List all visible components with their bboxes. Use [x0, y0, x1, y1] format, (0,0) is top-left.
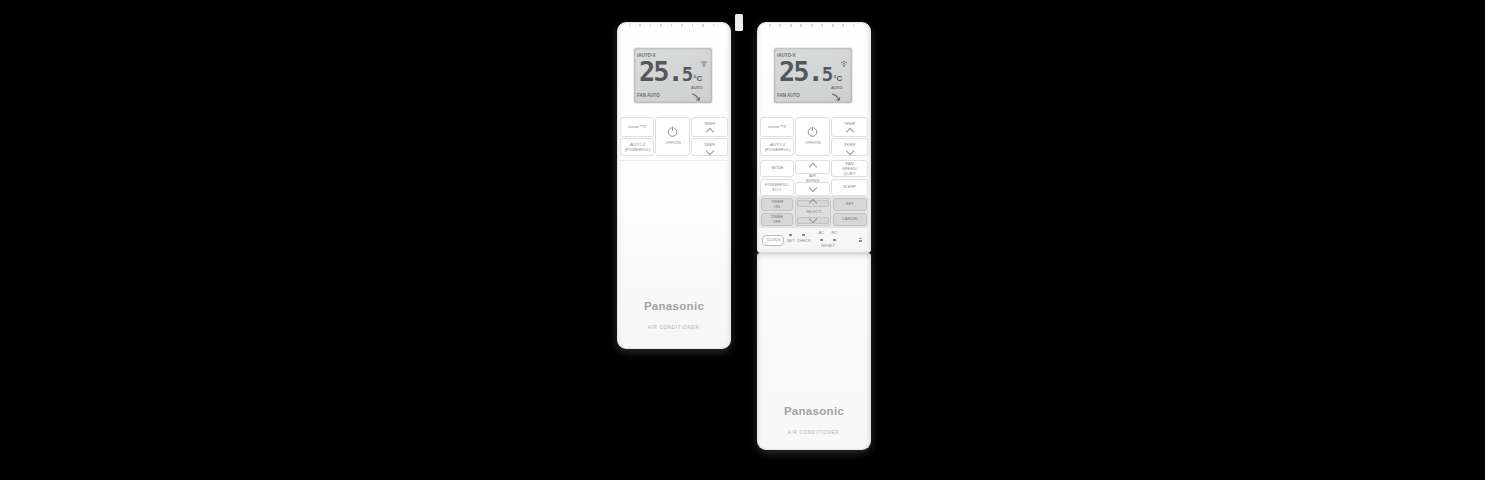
power-icon [666, 125, 679, 138]
powerful-eco-button[interactable]: POWERFUL/ ECO [760, 179, 794, 196]
pinhole-ac-reset[interactable]: AC [815, 228, 828, 241]
remote-flap-open: iAUTO-X 25.5°C FAN AUTO AUTO nanoe™X iAU… [757, 22, 871, 450]
lcd-display: iAUTO-X 25.5°C FAN AUTO AUTO [774, 48, 852, 103]
fan-status-label: FAN AUTO [637, 92, 660, 97]
brand-tagline: AIR CONDITIONER [757, 421, 871, 439]
select-down-button[interactable] [797, 217, 829, 224]
ir-vents [629, 24, 719, 27]
pinhole-check[interactable]: CHECK [797, 234, 810, 247]
temp-up-button[interactable]: TEMP [831, 117, 868, 137]
pinhole-rc-reset[interactable]: RC [828, 228, 841, 241]
product-photo: iAUTO-X 25.5°C FAN AUTO AUTO nanoe™X iAU… [0, 0, 1485, 480]
swing-auto-label: AUTO [831, 86, 842, 91]
secondary-buttons: MODE POWERFUL/ ECO AIR SWING FAN SPEED/ … [760, 160, 868, 196]
temp-down-button[interactable]: TEMP [691, 138, 728, 156]
set-button[interactable]: SET [833, 198, 867, 211]
mount-tab [735, 14, 743, 31]
pinhole-icon [789, 234, 792, 237]
power-off-on-button[interactable]: OFF/ON [655, 117, 690, 156]
pinhole-icon [833, 239, 836, 242]
power-icon [806, 125, 819, 138]
chevron-up-icon [705, 127, 713, 135]
brand-logo: Panasonic [757, 405, 871, 417]
primary-buttons: nanoe™X iAUTO-X (POWERFUL) OFF/ON TEMP T… [620, 117, 728, 156]
pinhole-icon [859, 240, 862, 243]
brand-tagline: AIR CONDITIONER [617, 316, 731, 334]
pinhole-mark [859, 238, 862, 239]
chevron-down-icon [809, 215, 817, 223]
air-swing-status: AUTO [684, 83, 709, 101]
air-swing-control: AIR SWING [795, 160, 830, 196]
fan-swing-icon [831, 93, 841, 101]
select-up-button[interactable] [797, 200, 829, 207]
fan-status-label: FAN AUTO [777, 92, 800, 97]
chevron-down-icon [845, 146, 853, 154]
chevron-down-icon [808, 183, 816, 191]
pinhole-icon [820, 239, 823, 242]
sleep-button[interactable]: SLEEP [831, 179, 868, 196]
mode-button[interactable]: MODE [760, 160, 794, 177]
flap-face: Panasonic AIR CONDITIONER [757, 253, 871, 450]
remote-flap-closed: iAUTO-X 25.5°C FAN AUTO AUTO nanoe™X iAU… [617, 22, 731, 349]
select-control: SELECT [795, 198, 831, 226]
select-label: SELECT [805, 210, 821, 215]
timer-panel: TIMER ON TIMER OFF SELECT SET CANCEL [759, 196, 869, 228]
power-off-on-button[interactable]: OFF/ON [795, 117, 830, 156]
pinhole-set[interactable]: SET [784, 234, 797, 247]
clock-button[interactable]: CLOCK [762, 235, 784, 246]
pinhole-icon [802, 234, 805, 237]
timer-off-button[interactable]: TIMER OFF [761, 213, 793, 226]
nanoe-x-button[interactable]: nanoe™X [620, 117, 654, 137]
brand-logo: Panasonic [617, 300, 731, 312]
fan-speed-quiet-button[interactable]: FAN SPEED/ QUIET [831, 160, 868, 177]
chevron-up-icon [809, 199, 817, 207]
service-row: CLOCK SET CHECK AC RC [762, 232, 867, 248]
chevron-up-icon [845, 127, 853, 135]
chevron-up-icon [808, 162, 816, 170]
timer-on-button[interactable]: TIMER ON [761, 198, 793, 211]
air-swing-up-button[interactable] [795, 160, 830, 174]
cancel-button[interactable]: CANCEL [833, 213, 867, 226]
fan-swing-icon [691, 93, 701, 101]
temp-up-button[interactable]: TEMP [691, 117, 728, 137]
air-swing-down-button[interactable] [795, 182, 830, 196]
reset-group: AC RC RESET [813, 228, 843, 251]
air-swing-label: AIR SWING [805, 173, 821, 182]
iauto-x-powerful-button[interactable]: iAUTO-X (POWERFUL) [620, 138, 654, 156]
iauto-x-powerful-button[interactable]: iAUTO-X (POWERFUL) [760, 138, 794, 156]
chevron-down-icon [705, 146, 713, 154]
swing-auto-label: AUTO [691, 86, 702, 91]
air-swing-status: AUTO [824, 83, 849, 101]
temp-down-button[interactable]: TEMP [831, 138, 868, 156]
primary-buttons: nanoe™X iAUTO-X (POWERFUL) OFF/ON TEMP T… [760, 117, 868, 156]
lcd-display: iAUTO-X 25.5°C FAN AUTO AUTO [634, 48, 712, 103]
pinhole-extra[interactable] [854, 238, 867, 243]
reset-label: RESET [821, 244, 835, 249]
nanoe-x-button[interactable]: nanoe™X [760, 117, 794, 137]
ir-vents [769, 24, 859, 27]
flap-seam [619, 160, 729, 161]
